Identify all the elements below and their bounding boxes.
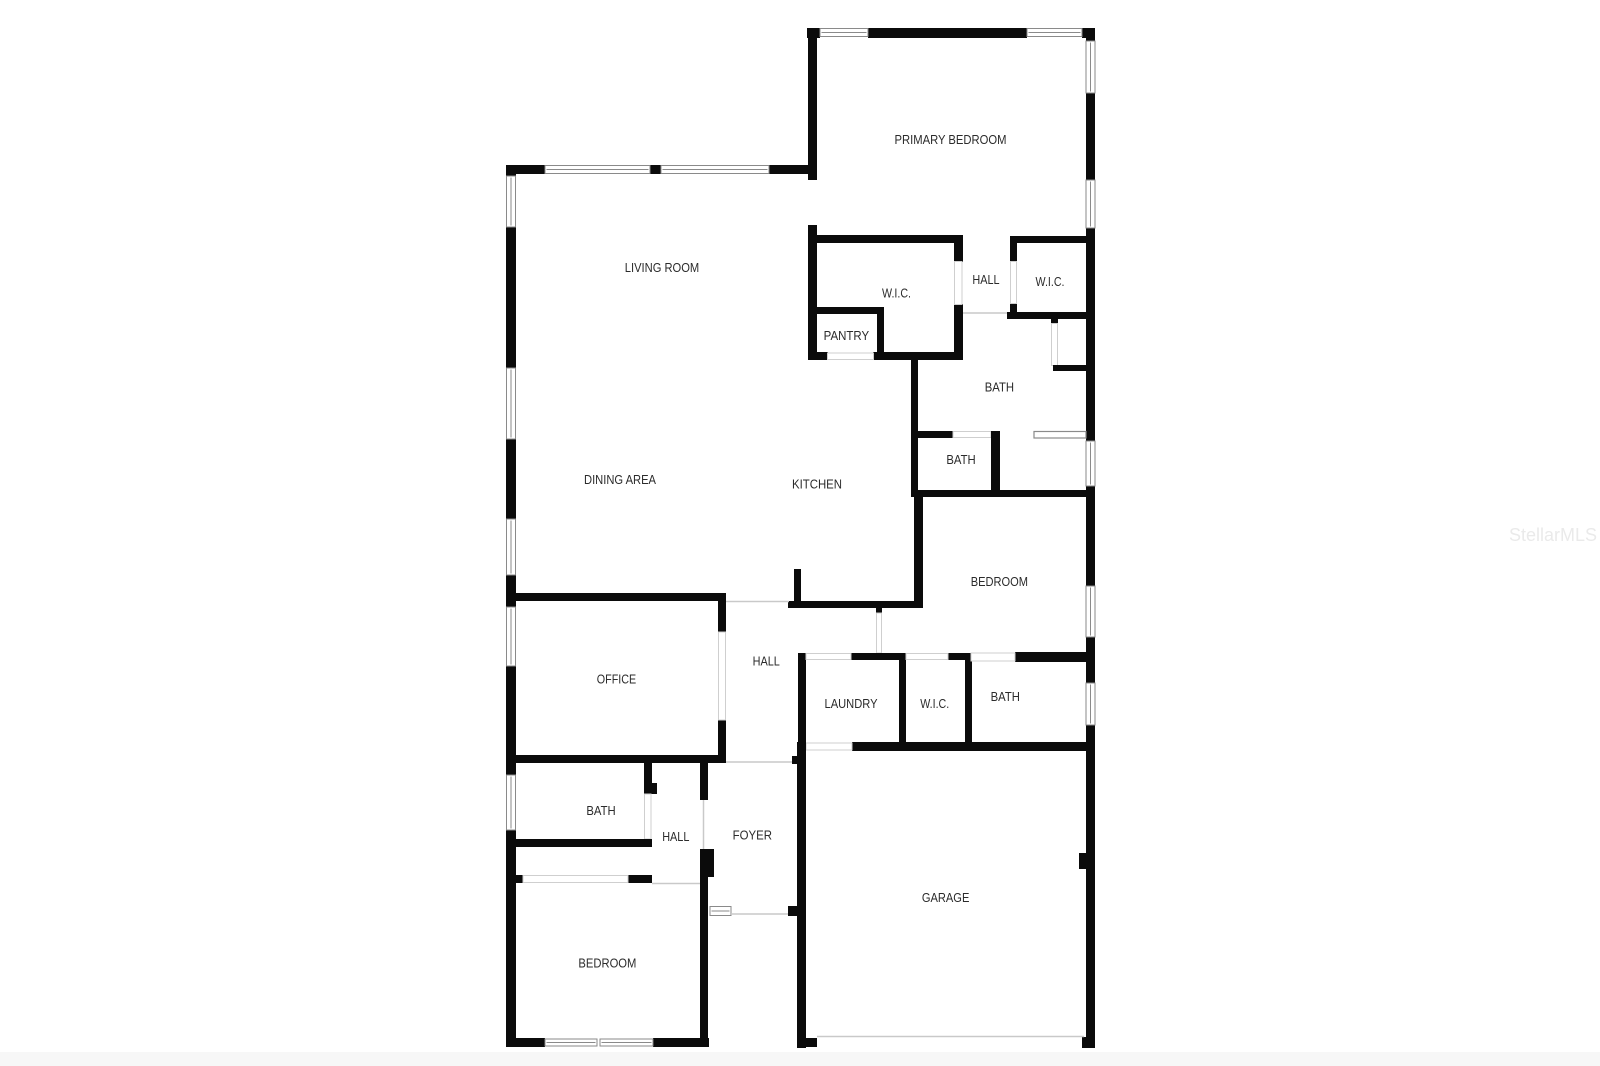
svg-text:W.I.C.: W.I.C. — [882, 286, 911, 301]
svg-text:W.I.C.: W.I.C. — [920, 696, 949, 711]
svg-text:BATH: BATH — [946, 452, 975, 467]
svg-text:StellarMLS: StellarMLS — [1509, 525, 1597, 545]
svg-text:BATH: BATH — [985, 380, 1014, 395]
svg-text:GARAGE: GARAGE — [922, 890, 970, 905]
svg-text:DINING AREA: DINING AREA — [584, 472, 656, 487]
svg-text:BEDROOM: BEDROOM — [578, 956, 636, 971]
svg-text:W.I.C.: W.I.C. — [1036, 274, 1065, 289]
svg-text:BATH: BATH — [991, 689, 1020, 704]
svg-text:HALL: HALL — [662, 829, 689, 844]
svg-text:LIVING ROOM: LIVING ROOM — [625, 260, 700, 275]
svg-text:FOYER: FOYER — [733, 828, 772, 843]
svg-text:KITCHEN: KITCHEN — [792, 477, 842, 492]
svg-text:BATH: BATH — [586, 803, 615, 818]
svg-text:HALL: HALL — [753, 654, 780, 669]
svg-text:LAUNDRY: LAUNDRY — [825, 696, 878, 711]
svg-text:OFFICE: OFFICE — [597, 672, 637, 687]
svg-text:PANTRY: PANTRY — [824, 328, 870, 343]
svg-text:BEDROOM: BEDROOM — [971, 574, 1028, 589]
svg-text:HALL: HALL — [972, 272, 999, 287]
svg-text:PRIMARY BEDROOM: PRIMARY BEDROOM — [895, 132, 1007, 147]
